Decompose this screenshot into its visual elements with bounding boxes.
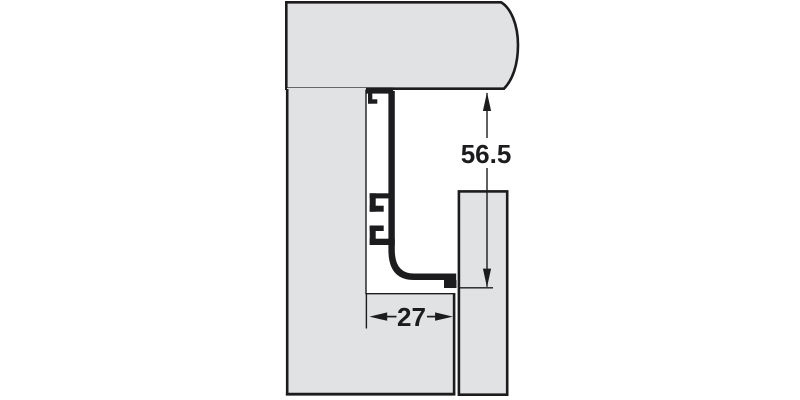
profile-lower-hook-bar [370, 239, 395, 245]
profile-bottom-lip [444, 280, 457, 288]
aluminum-profile [366, 87, 457, 288]
gola-profile-cross-section-drawing: 56.5 27 [0, 0, 800, 400]
dimension-vertical-label: 56.5 [461, 139, 512, 169]
dimension-arrow-up-icon [483, 92, 491, 111]
profile-upper-hook-foot [370, 206, 384, 212]
door-front-panel [459, 191, 507, 394]
technical-drawing-canvas: 56.5 27 [0, 0, 800, 400]
profile-wall-and-bottom-flange [388, 91, 456, 280]
profile-top-stub-foot [368, 99, 377, 103]
dimension-horizontal-label: 27 [397, 302, 426, 332]
worktop-panel [286, 2, 518, 88]
